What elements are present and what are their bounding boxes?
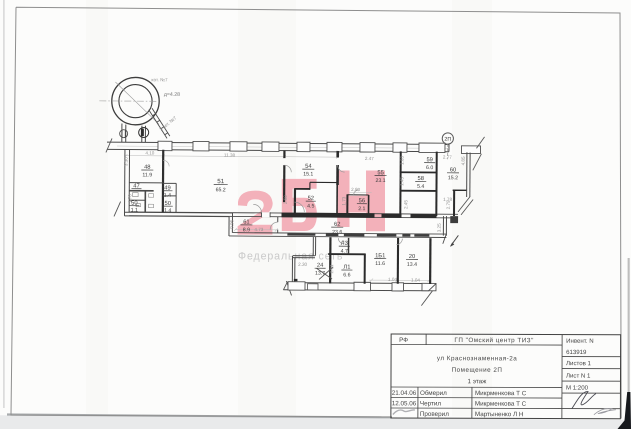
svg-text:5.4: 5.4 bbox=[417, 184, 424, 190]
svg-text:6.0: 6.0 bbox=[426, 165, 433, 171]
svg-text:23.1: 23.1 bbox=[375, 178, 385, 184]
svg-text:6.6: 6.6 bbox=[343, 272, 350, 278]
svg-text:4.5: 4.5 bbox=[307, 204, 314, 210]
svg-text:2.80: 2.80 bbox=[351, 187, 360, 192]
svg-text:М 1:200: М 1:200 bbox=[566, 385, 589, 392]
svg-text:Микрменкова Т С: Микрменкова Т С bbox=[475, 390, 527, 397]
svg-text:2.47: 2.47 bbox=[365, 156, 374, 161]
svg-text:Микрменкова Т С: Микрменкова Т С bbox=[475, 401, 527, 408]
svg-text:1.45: 1.45 bbox=[399, 177, 404, 186]
svg-text:Помещение 2П: Помещение 2П bbox=[452, 367, 503, 374]
svg-text:65.2: 65.2 bbox=[216, 187, 226, 193]
svg-text:1.04: 1.04 bbox=[388, 277, 397, 282]
svg-text:15.1: 15.1 bbox=[303, 172, 313, 178]
svg-text:1.70: 1.70 bbox=[127, 194, 132, 203]
svg-text:1.4: 1.4 bbox=[164, 193, 171, 199]
svg-text:Федеральная сеть: Федеральная сеть bbox=[238, 250, 343, 262]
svg-text:2.45: 2.45 bbox=[403, 200, 408, 209]
svg-text:13.4: 13.4 bbox=[407, 262, 417, 268]
svg-text:11.6: 11.6 bbox=[375, 261, 385, 267]
svg-text:д=4.28: д=4.28 bbox=[164, 92, 180, 98]
svg-text:4.73: 4.73 bbox=[254, 227, 263, 232]
svg-text:4.85: 4.85 bbox=[461, 156, 466, 165]
svg-text:Чертил: Чертил bbox=[420, 400, 441, 407]
svg-text:23.6: 23.6 bbox=[332, 230, 342, 236]
svg-text:1.4: 1.4 bbox=[164, 208, 171, 214]
svg-text:Лист N 1: Лист N 1 bbox=[566, 373, 591, 380]
svg-text:3.30: 3.30 bbox=[123, 157, 128, 166]
svg-text:Инвент. N: Инвент. N bbox=[566, 338, 594, 345]
svg-text:0.96: 0.96 bbox=[229, 219, 234, 228]
svg-text:3.25: 3.25 bbox=[437, 223, 442, 232]
svg-text:1.04: 1.04 bbox=[411, 278, 420, 283]
svg-text:ГП "Омский центр ТИЗ": ГП "Омский центр ТИЗ" bbox=[454, 336, 533, 344]
svg-text:Проверил: Проверил bbox=[420, 411, 449, 418]
svg-text:13.7: 13.7 bbox=[315, 271, 325, 277]
svg-text:2.79: 2.79 bbox=[446, 200, 451, 209]
svg-text:ул Краснознаменная-2а: ул Краснознаменная-2а bbox=[437, 355, 517, 362]
svg-text:кот. №7: кот. №7 bbox=[151, 77, 168, 82]
svg-text:11.9: 11.9 bbox=[142, 172, 152, 178]
svg-text:Обмерил: Обмерил bbox=[420, 389, 447, 397]
svg-text:1.63: 1.63 bbox=[399, 156, 404, 165]
svg-text:4.7: 4.7 bbox=[341, 249, 348, 255]
svg-text:2.60: 2.60 bbox=[283, 195, 288, 204]
svg-text:2.91: 2.91 bbox=[329, 264, 334, 273]
svg-text:Мартыненко Л Н: Мартыненко Л Н bbox=[475, 411, 524, 418]
svg-text:2.77: 2.77 bbox=[443, 155, 452, 160]
svg-text:21.04.06: 21.04.06 bbox=[392, 390, 417, 397]
svg-text:1.73: 1.73 bbox=[341, 196, 346, 205]
svg-text:15.2: 15.2 bbox=[448, 175, 458, 181]
svg-text:12.05.06: 12.05.06 bbox=[392, 400, 417, 407]
svg-text:2П: 2П bbox=[444, 137, 451, 143]
svg-text:11.38: 11.38 bbox=[224, 153, 236, 158]
svg-text:51: 51 bbox=[217, 178, 224, 185]
svg-text:1.1: 1.1 bbox=[131, 207, 138, 213]
svg-text:2.30: 2.30 bbox=[298, 262, 307, 267]
svg-text:1 этаж: 1 этаж bbox=[468, 378, 488, 385]
svg-text:613919: 613919 bbox=[566, 349, 587, 356]
svg-text:8.9: 8.9 bbox=[243, 227, 250, 233]
svg-text:Листов 1: Листов 1 bbox=[566, 360, 592, 367]
svg-text:РФ: РФ bbox=[399, 337, 408, 344]
svg-text:4.10: 4.10 bbox=[145, 150, 154, 155]
svg-text:2.1: 2.1 bbox=[358, 206, 365, 212]
